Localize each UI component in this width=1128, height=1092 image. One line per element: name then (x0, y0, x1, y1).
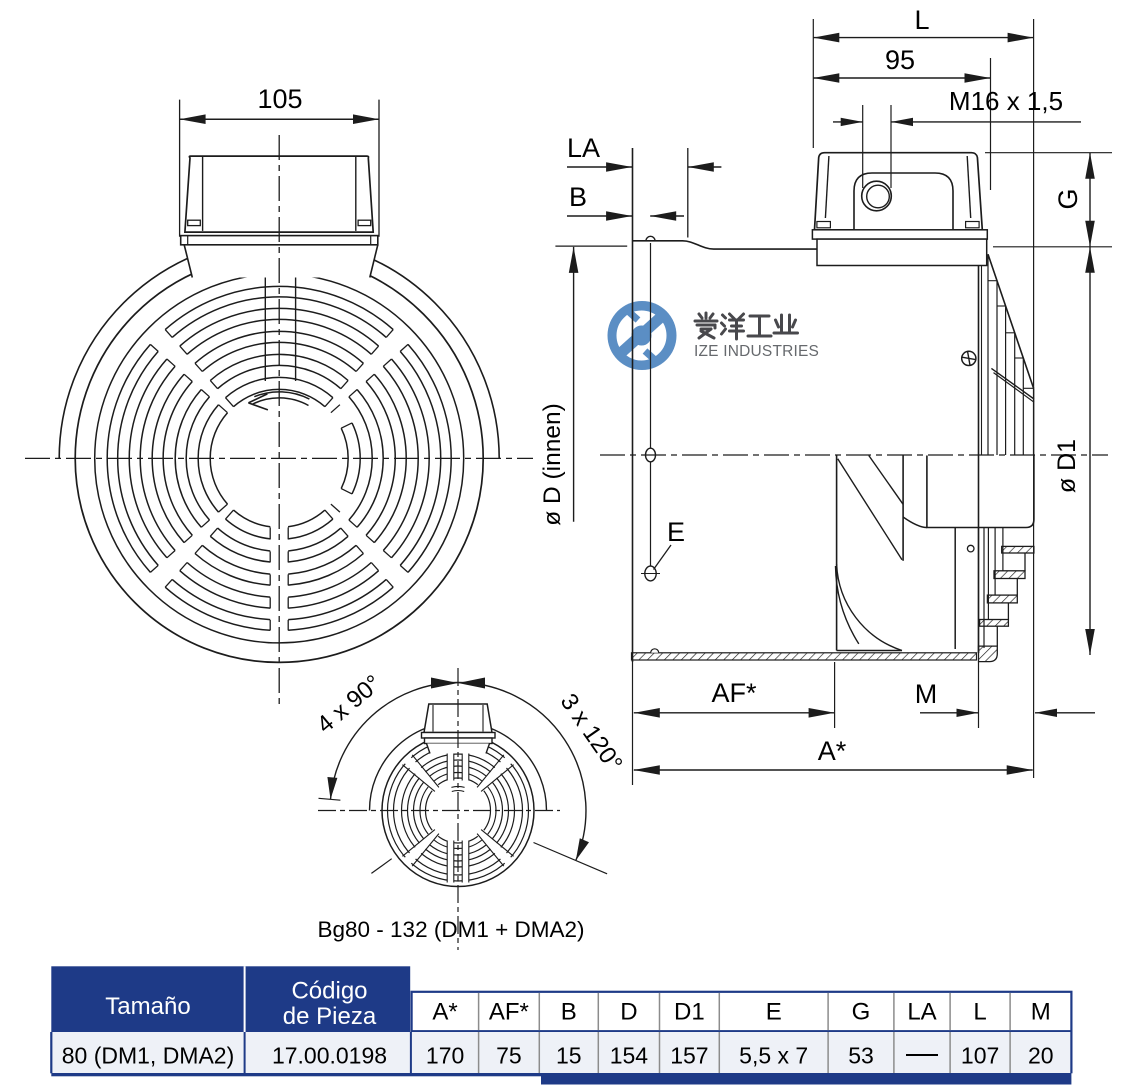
svg-text:D: D (620, 999, 637, 1026)
svg-text:M: M (915, 679, 938, 709)
svg-text:M16 x 1,5: M16 x 1,5 (949, 86, 1063, 116)
svg-text:de Pieza: de Pieza (283, 1003, 377, 1030)
svg-text:E: E (766, 999, 782, 1026)
svg-text:80 (DM1, DMA2): 80 (DM1, DMA2) (62, 1043, 235, 1069)
svg-text:ø D1: ø D1 (1053, 439, 1081, 493)
svg-text:ø D (innen): ø D (innen) (539, 403, 566, 526)
svg-text:154: 154 (610, 1043, 649, 1069)
svg-text:B: B (569, 182, 587, 212)
svg-text:95: 95 (885, 45, 915, 75)
svg-text:A*: A* (818, 736, 847, 766)
svg-text:Bg80 - 132 (DM1 + DMA2): Bg80 - 132 (DM1 + DMA2) (318, 917, 585, 942)
svg-text:157: 157 (670, 1043, 708, 1069)
svg-text:B: B (561, 999, 577, 1026)
svg-text:LA: LA (907, 999, 936, 1026)
svg-text:IZE INDUSTRIES: IZE INDUSTRIES (694, 343, 819, 360)
svg-text:G: G (1053, 188, 1083, 209)
svg-text:107: 107 (961, 1043, 999, 1069)
svg-text:75: 75 (496, 1043, 522, 1069)
svg-text:E: E (667, 517, 685, 547)
svg-text:15: 15 (556, 1043, 582, 1069)
svg-text:A*: A* (432, 999, 457, 1026)
svg-text:AF*: AF* (711, 678, 757, 708)
svg-text:Código: Código (291, 978, 367, 1005)
svg-text:Tamaño: Tamaño (105, 993, 190, 1020)
svg-text:20: 20 (1028, 1043, 1054, 1069)
svg-text:5,5 x 7: 5,5 x 7 (739, 1043, 808, 1069)
svg-text:D1: D1 (674, 999, 705, 1026)
svg-text:105: 105 (257, 84, 302, 114)
svg-text:L: L (914, 5, 929, 35)
svg-text:LA: LA (567, 133, 600, 163)
svg-text:G: G (852, 999, 871, 1026)
svg-text:M: M (1031, 999, 1051, 1026)
svg-text:L: L (973, 999, 986, 1026)
svg-text:53: 53 (848, 1043, 874, 1069)
svg-text:170: 170 (426, 1043, 464, 1069)
svg-text:AF*: AF* (489, 999, 529, 1026)
svg-text:17.00.0198: 17.00.0198 (272, 1043, 387, 1069)
